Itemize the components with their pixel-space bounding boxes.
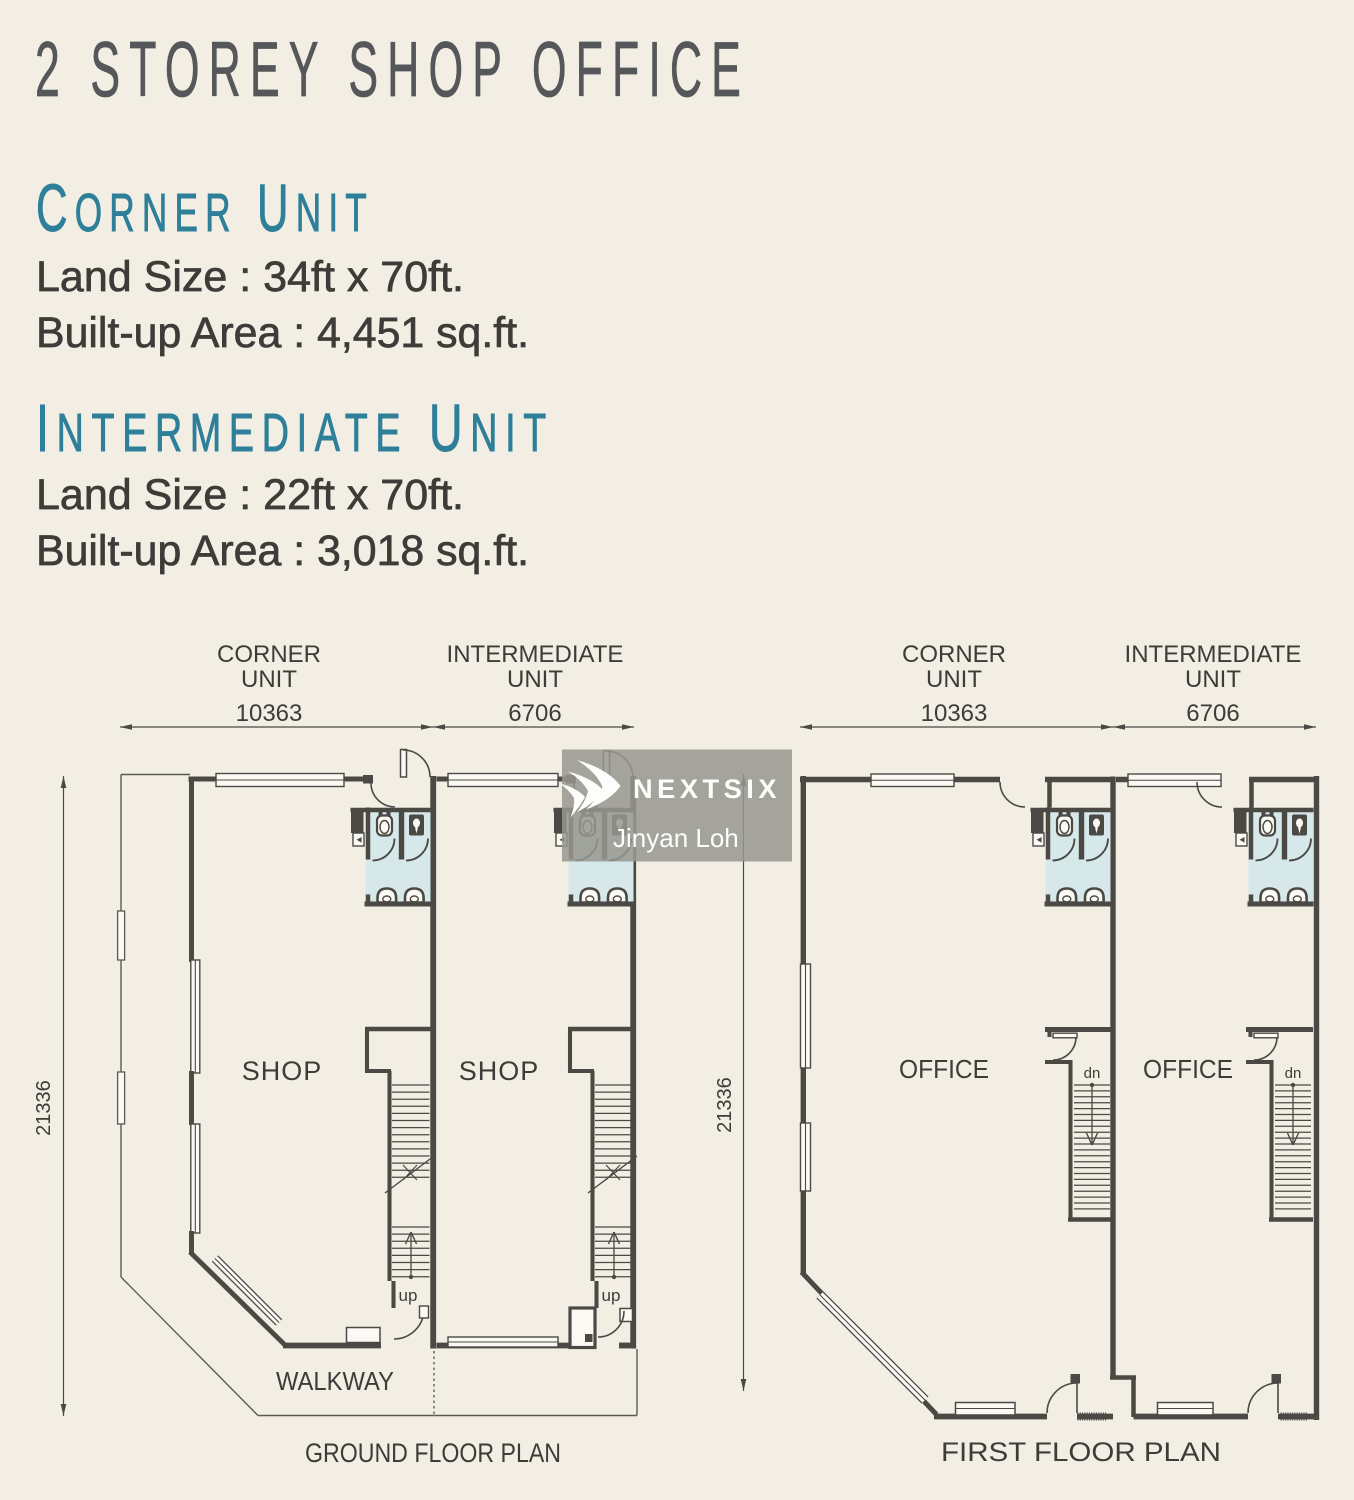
svg-text:INTERMEDIATE UNIT: INTERMEDIATE UNIT [36, 391, 554, 466]
svg-text:Jinyan Loh: Jinyan Loh [613, 823, 739, 853]
svg-text:INTERMEDIATE: INTERMEDIATE [1125, 641, 1302, 668]
svg-text:FIRST FLOOR PLAN: FIRST FLOOR PLAN [941, 1437, 1221, 1467]
svg-text:INTERMEDIATE: INTERMEDIATE [447, 641, 624, 668]
svg-text:Land Size : 22ft x 70ft.: Land Size : 22ft x 70ft. [36, 471, 464, 519]
svg-text:GROUND FLOOR PLAN: GROUND FLOOR PLAN [305, 1438, 561, 1468]
svg-text:10363: 10363 [236, 700, 303, 727]
svg-text:UNIT: UNIT [507, 666, 563, 693]
svg-text:2 STOREY SHOP OFFICE: 2 STOREY SHOP OFFICE [35, 25, 750, 113]
svg-text:21336: 21336 [33, 1080, 55, 1136]
svg-text:21336: 21336 [714, 1077, 736, 1133]
svg-text:up: up [602, 1286, 621, 1305]
svg-text:SHOP: SHOP [459, 1056, 540, 1086]
svg-text:OFFICE: OFFICE [899, 1054, 989, 1084]
svg-text:dn: dn [1084, 1065, 1101, 1082]
svg-text:CORNER UNIT: CORNER UNIT [36, 171, 374, 246]
svg-text:CORNER: CORNER [217, 641, 321, 668]
svg-text:SHOP: SHOP [242, 1056, 323, 1086]
svg-text:dn: dn [1285, 1065, 1302, 1082]
svg-text:6706: 6706 [1186, 700, 1239, 727]
svg-text:Built-up Area : 3,018 sq.ft.: Built-up Area : 3,018 sq.ft. [36, 527, 529, 575]
svg-text:OFFICE: OFFICE [1143, 1054, 1233, 1084]
svg-text:Built-up Area : 4,451 sq.ft.: Built-up Area : 4,451 sq.ft. [36, 309, 529, 357]
svg-text:10363: 10363 [921, 700, 988, 727]
svg-text:Land Size : 34ft x 70ft.: Land Size : 34ft x 70ft. [36, 253, 464, 301]
svg-text:WALKWAY: WALKWAY [276, 1366, 394, 1396]
svg-text:CORNER: CORNER [902, 641, 1006, 668]
svg-text:6706: 6706 [508, 700, 561, 727]
svg-text:UNIT: UNIT [241, 666, 297, 693]
svg-text:UNIT: UNIT [1185, 666, 1241, 693]
svg-text:up: up [399, 1286, 418, 1305]
svg-text:NEXTSIX: NEXTSIX [633, 774, 781, 804]
svg-text:UNIT: UNIT [926, 666, 982, 693]
